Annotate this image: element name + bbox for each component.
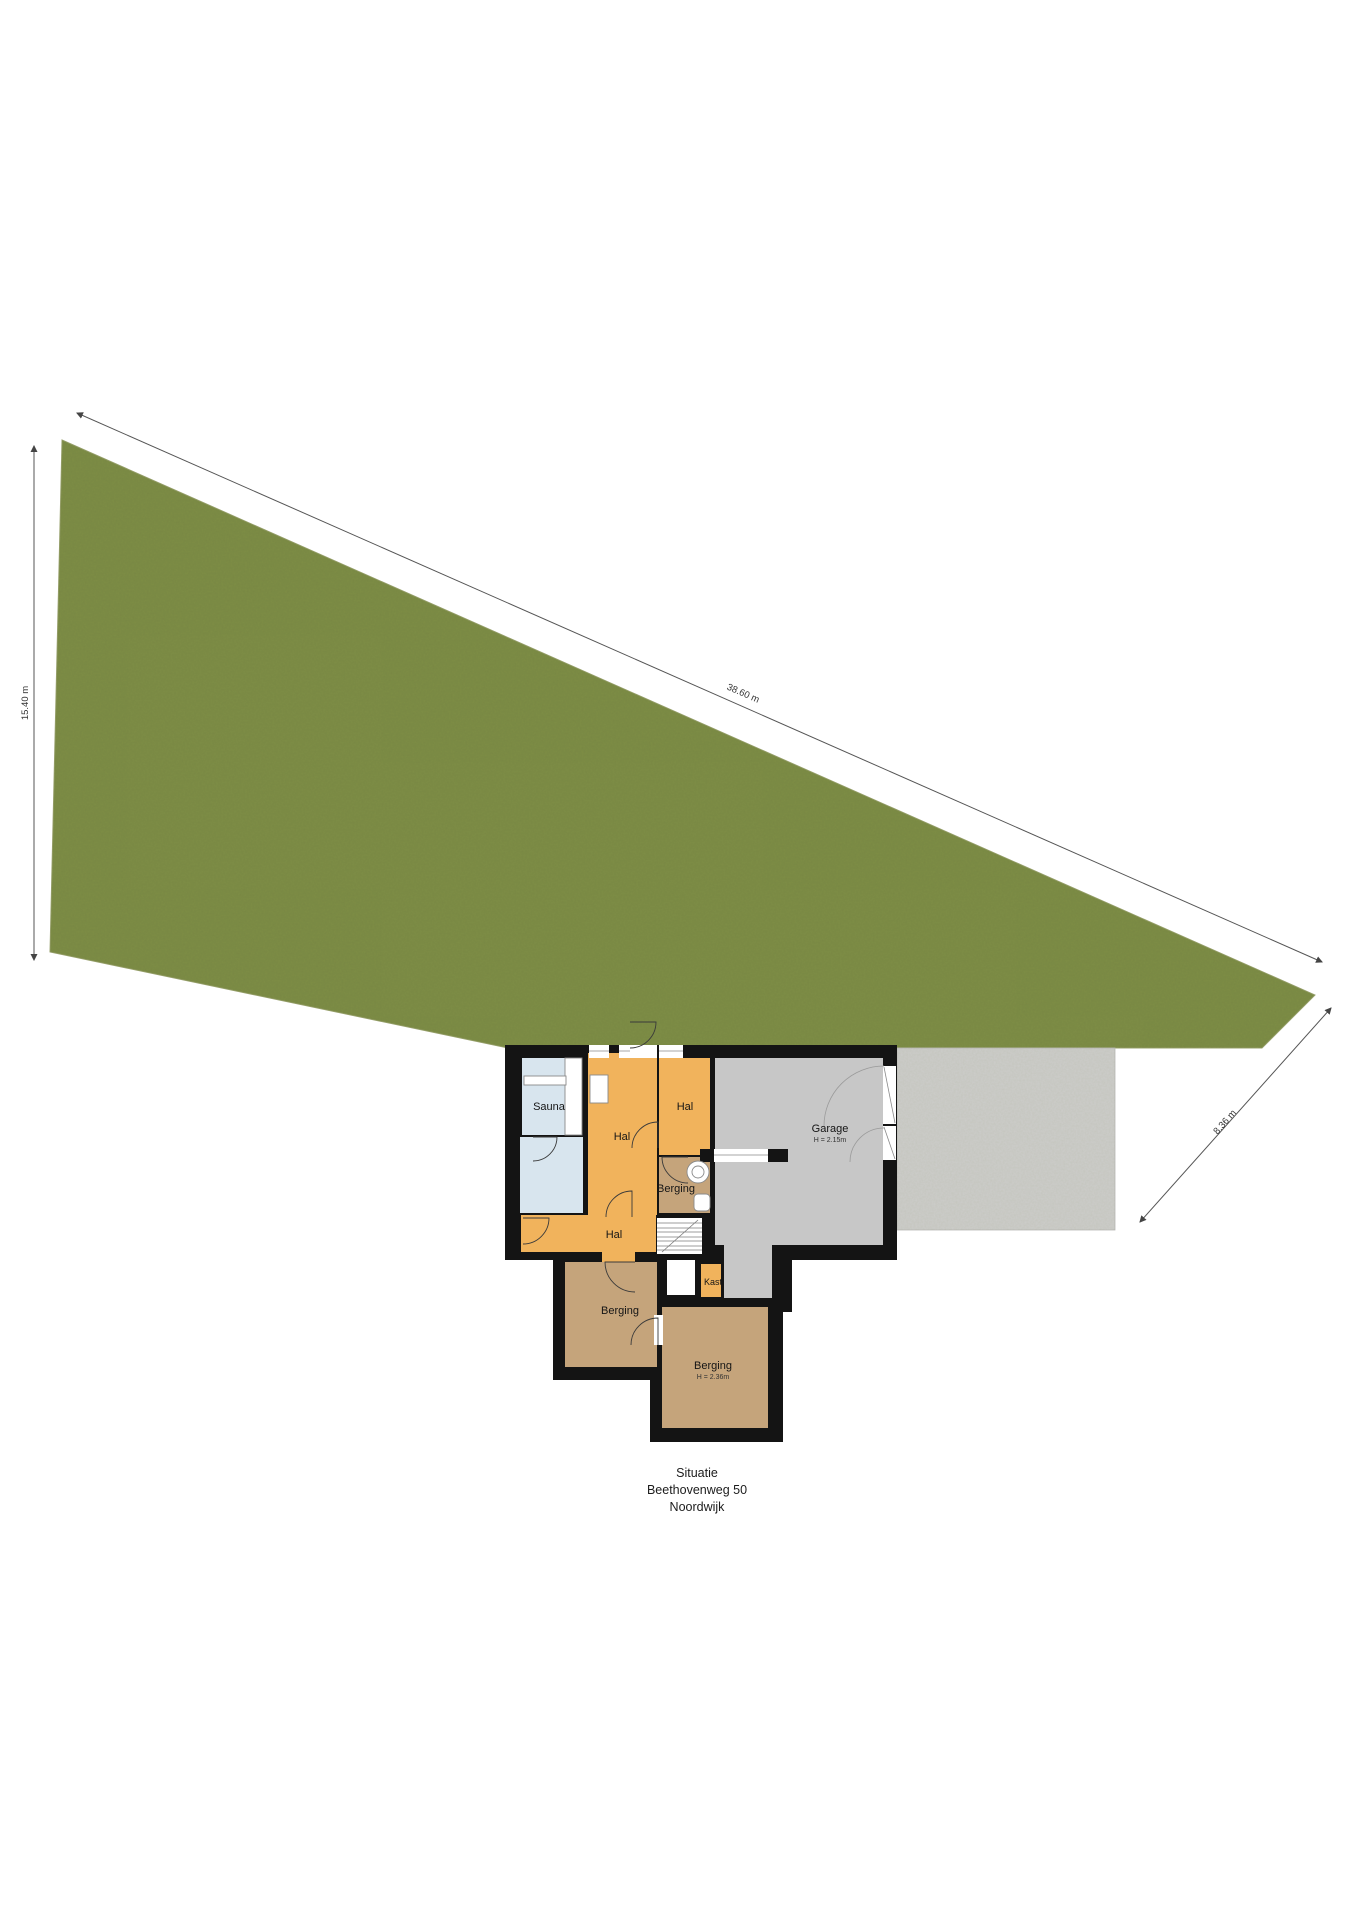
room-hal-bottom xyxy=(521,1215,656,1252)
window-top-1 xyxy=(589,1045,609,1058)
situatie-plan-canvas: 15.40 m 38.60 m 8.36 m xyxy=(0,0,1358,1920)
window-top-3 xyxy=(659,1045,683,1058)
meter-cabinet xyxy=(590,1075,608,1103)
toilet-icon xyxy=(694,1194,710,1211)
label-garage-height: H = 2.15m xyxy=(814,1137,847,1144)
plan-city: Noordwijk xyxy=(670,1500,726,1514)
sauna-shelf xyxy=(524,1076,566,1085)
garage-alcove xyxy=(724,1245,772,1298)
berging-bottom-door-gap xyxy=(654,1315,663,1345)
label-kast: Kast xyxy=(704,1277,723,1287)
label-hal-bottom: Hal xyxy=(606,1229,623,1241)
dimension-left: 15.40 m xyxy=(20,446,34,960)
grass-texture xyxy=(40,430,1330,1060)
label-berging-bottom: Berging xyxy=(694,1360,732,1372)
garden-area xyxy=(40,430,1330,1060)
room-below-sauna xyxy=(520,1137,583,1213)
title-block: Situatie Beethovenweg 50 Noordwijk xyxy=(647,1466,747,1514)
dimension-right-label: 8.36 m xyxy=(1211,1108,1239,1137)
label-berging-left: Berging xyxy=(601,1305,639,1317)
driveway xyxy=(897,1048,1115,1230)
label-berging-bottom-height: H = 2.36m xyxy=(697,1374,730,1381)
plan-title: Situatie xyxy=(676,1466,718,1480)
label-sauna: Sauna xyxy=(533,1101,566,1113)
label-garage: Garage xyxy=(812,1123,849,1135)
label-hal-main: Hal xyxy=(614,1131,631,1143)
dimension-top-label: 38.60 m xyxy=(725,682,761,706)
dimension-left-label: 15.40 m xyxy=(20,686,31,720)
garage-divider-opening xyxy=(714,1149,768,1162)
plan-address: Beethovenweg 50 xyxy=(647,1483,747,1497)
room-hal-bottom-bump xyxy=(602,1250,635,1263)
floorplan-drawing: 15.40 m 38.60 m 8.36 m xyxy=(0,0,1358,1920)
label-berging-small: Berging xyxy=(657,1183,695,1195)
washing-machine-drum xyxy=(692,1166,704,1178)
sauna-bench xyxy=(565,1058,582,1135)
paving-texture xyxy=(897,1048,1115,1230)
label-hal-top: Hal xyxy=(677,1101,694,1113)
